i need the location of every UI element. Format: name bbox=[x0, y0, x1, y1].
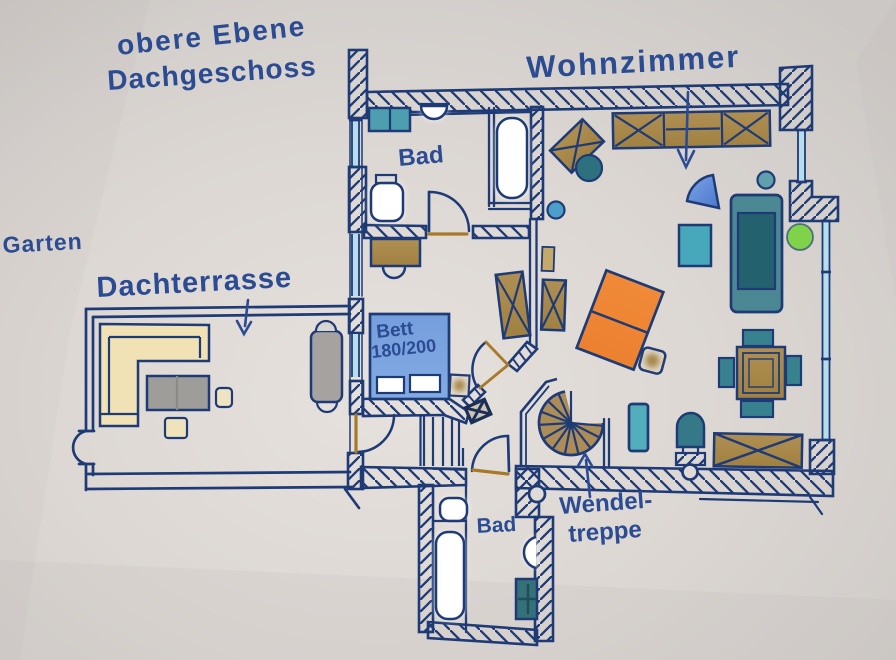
svg-text:Bad: Bad bbox=[397, 141, 445, 172]
svg-text:Garten: Garten bbox=[2, 228, 83, 258]
svg-text:Bad: Bad bbox=[476, 513, 517, 538]
svg-text:treppe: treppe bbox=[568, 516, 643, 548]
